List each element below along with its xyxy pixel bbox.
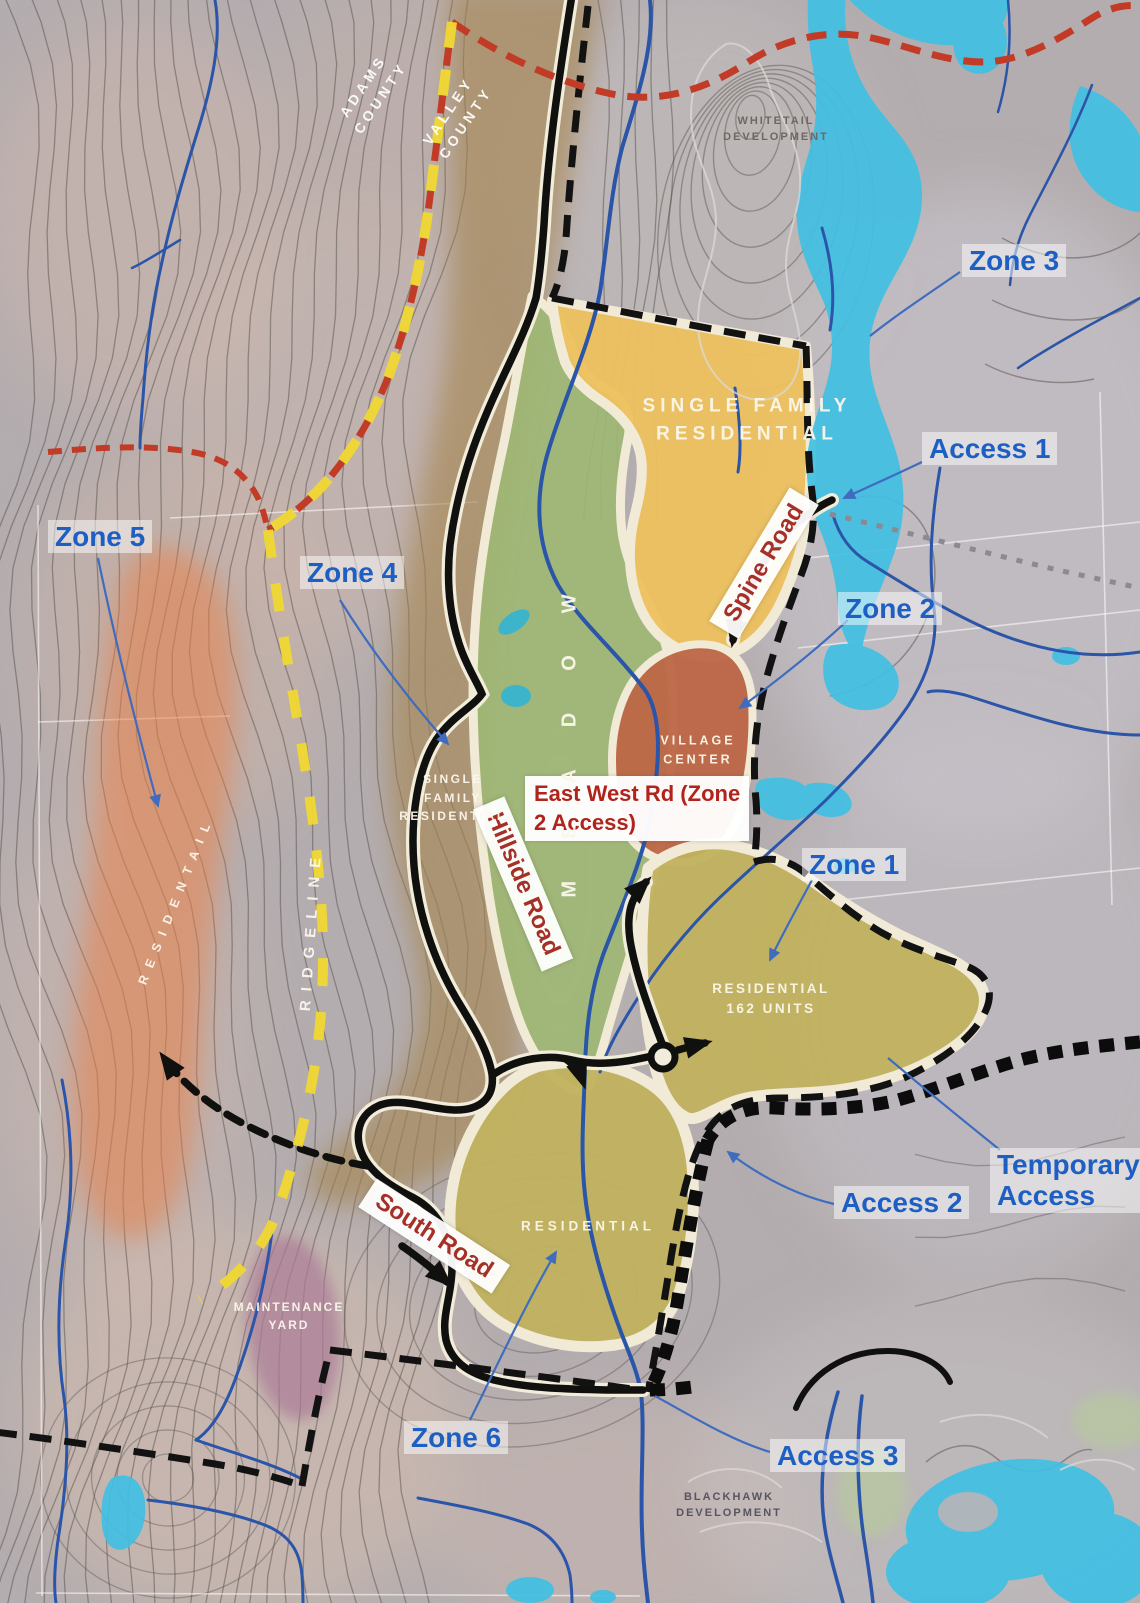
village-center-label: VILLAGE CENTER: [660, 732, 735, 771]
maintenance-yard-label: MAINTENANCE YARD: [234, 1298, 345, 1334]
residential-162-units-label: RESIDENTIAL 162 UNITS: [712, 979, 830, 1020]
zone5-callout: Zone 5: [48, 520, 152, 553]
access2-callout: Access 2: [834, 1186, 969, 1219]
roundabout: [651, 1045, 675, 1069]
site-plan-map-page: ADAMS COUNTY VALLEY COUNTY WHITETAIL DEV…: [0, 0, 1140, 1603]
whitetail-development-label: WHITETAIL DEVELOPMENT: [723, 114, 829, 146]
zone6-callout: Zone 6: [404, 1421, 508, 1454]
zone3-callout: Zone 3: [962, 244, 1066, 277]
residential-south-label: RESIDENTIAL: [521, 1219, 655, 1234]
single-family-residential-zone3-label: SINGLE FAMILY RESIDENTIAL: [643, 392, 852, 447]
zone2-callout: Zone 2: [838, 592, 942, 625]
access1-callout: Access 1: [922, 432, 1057, 465]
temporary-access-callout: Temporary Access: [990, 1148, 1140, 1213]
blackhawk-development-label: BLACKHAWK DEVELOPMENT: [676, 1490, 782, 1522]
meadow-label: MEADOW: [559, 552, 582, 897]
single-family-residential-hillside-label: SINGLE FAMILY RESIDENTIAL: [399, 770, 507, 826]
zone1-callout: Zone 1: [802, 848, 906, 881]
zone4-callout: Zone 4: [300, 556, 404, 589]
access3-callout: Access 3: [770, 1439, 905, 1472]
